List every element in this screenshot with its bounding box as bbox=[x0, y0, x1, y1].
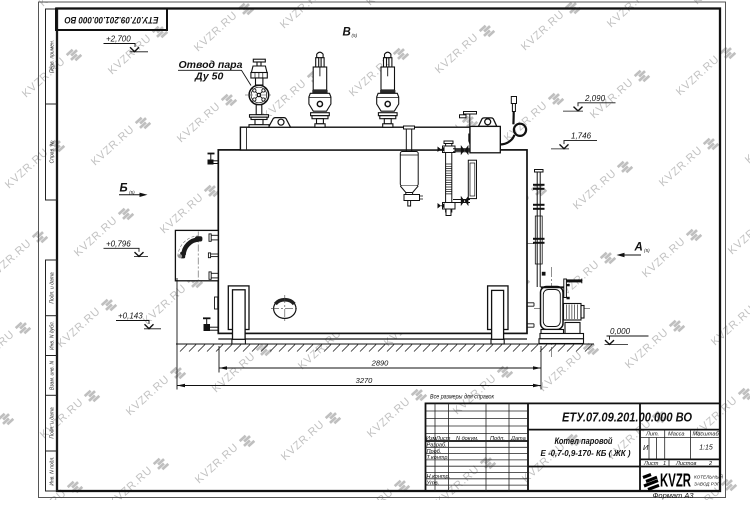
svg-text:Инв. N дубл.: Инв. N дубл. bbox=[50, 321, 56, 350]
svg-text:Е -0,7-0,9-170- КБ ( ЖК ): Е -0,7-0,9-170- КБ ( ЖК ) bbox=[541, 448, 631, 458]
svg-text:(5): (5) bbox=[352, 33, 358, 38]
svg-text:Перв. примен.: Перв. примен. bbox=[50, 40, 56, 73]
svg-text:Утв.: Утв. bbox=[426, 480, 440, 486]
svg-text:2890: 2890 bbox=[371, 359, 390, 368]
svg-text:ЕТУ.07.09.201.00.000 ВО: ЕТУ.07.09.201.00.000 ВО bbox=[65, 15, 159, 25]
svg-text:1: 1 bbox=[663, 461, 666, 467]
svg-text:Масса: Масса bbox=[668, 431, 685, 437]
svg-text:Подп. и дата: Подп. и дата bbox=[50, 272, 56, 304]
svg-text:Взам. инв. N: Взам. инв. N bbox=[50, 361, 56, 391]
svg-text:Формат А3: Формат А3 bbox=[652, 491, 694, 500]
svg-text:1,746: 1,746 bbox=[571, 132, 592, 141]
svg-text:КОТЕЛЬНЫЙ: КОТЕЛЬНЫЙ bbox=[694, 473, 724, 480]
svg-text:(5): (5) bbox=[129, 190, 135, 195]
svg-text:0,000: 0,000 bbox=[610, 327, 631, 336]
svg-text:+0,143: +0,143 bbox=[118, 312, 143, 321]
svg-text:Лит.: Лит. bbox=[645, 431, 659, 437]
svg-text:Ду 50: Ду 50 bbox=[194, 71, 223, 83]
svg-text:Подп.: Подп. bbox=[490, 436, 505, 442]
svg-text:1:15: 1:15 bbox=[699, 445, 713, 452]
svg-text:Н.контр.: Н.контр. bbox=[427, 474, 451, 480]
svg-text:Листов: Листов bbox=[675, 461, 696, 467]
svg-text:Подп. и дата: Подп. и дата bbox=[50, 407, 56, 439]
svg-text:А: А bbox=[634, 242, 643, 254]
svg-text:Все размеры для справок: Все размеры для справок bbox=[430, 393, 495, 401]
svg-text:ЕТУ.07.09.201.00.000 ВО: ЕТУ.07.09.201.00.000 ВО bbox=[562, 410, 692, 425]
svg-text:Разраб.: Разраб. bbox=[427, 443, 447, 449]
svg-text:Лист: Лист bbox=[643, 461, 659, 467]
svg-text:Инв. N подл.: Инв. N подл. bbox=[50, 456, 56, 485]
svg-text:И: И bbox=[643, 443, 649, 452]
svg-text:Отвод пара: Отвод пара bbox=[179, 59, 243, 71]
svg-text:Б: Б bbox=[120, 183, 128, 195]
svg-text:(5): (5) bbox=[644, 248, 650, 253]
svg-text:ЗАВОД РЭП: ЗАВОД РЭП bbox=[694, 482, 721, 487]
svg-text:3270: 3270 bbox=[356, 376, 374, 385]
svg-text:В: В bbox=[343, 27, 351, 39]
svg-text:+2,700: +2,700 bbox=[106, 35, 131, 44]
svg-text:+0,796: +0,796 bbox=[106, 240, 131, 249]
svg-text:Котел паровой: Котел паровой bbox=[555, 436, 613, 446]
svg-text:2,090: 2,090 bbox=[584, 94, 606, 103]
svg-text:Дата: Дата bbox=[510, 436, 526, 442]
svg-text:Проб.: Проб. bbox=[427, 449, 442, 455]
svg-text:Справ. №: Справ. № bbox=[50, 140, 56, 163]
svg-text:Т.контр.: Т.контр. bbox=[427, 455, 450, 461]
svg-text:Масштаб: Масштаб bbox=[693, 431, 720, 437]
svg-text:N докум.: N докум. bbox=[456, 436, 479, 442]
svg-text:KVZR: KVZR bbox=[660, 471, 691, 491]
svg-text:Лист: Лист bbox=[435, 436, 451, 442]
